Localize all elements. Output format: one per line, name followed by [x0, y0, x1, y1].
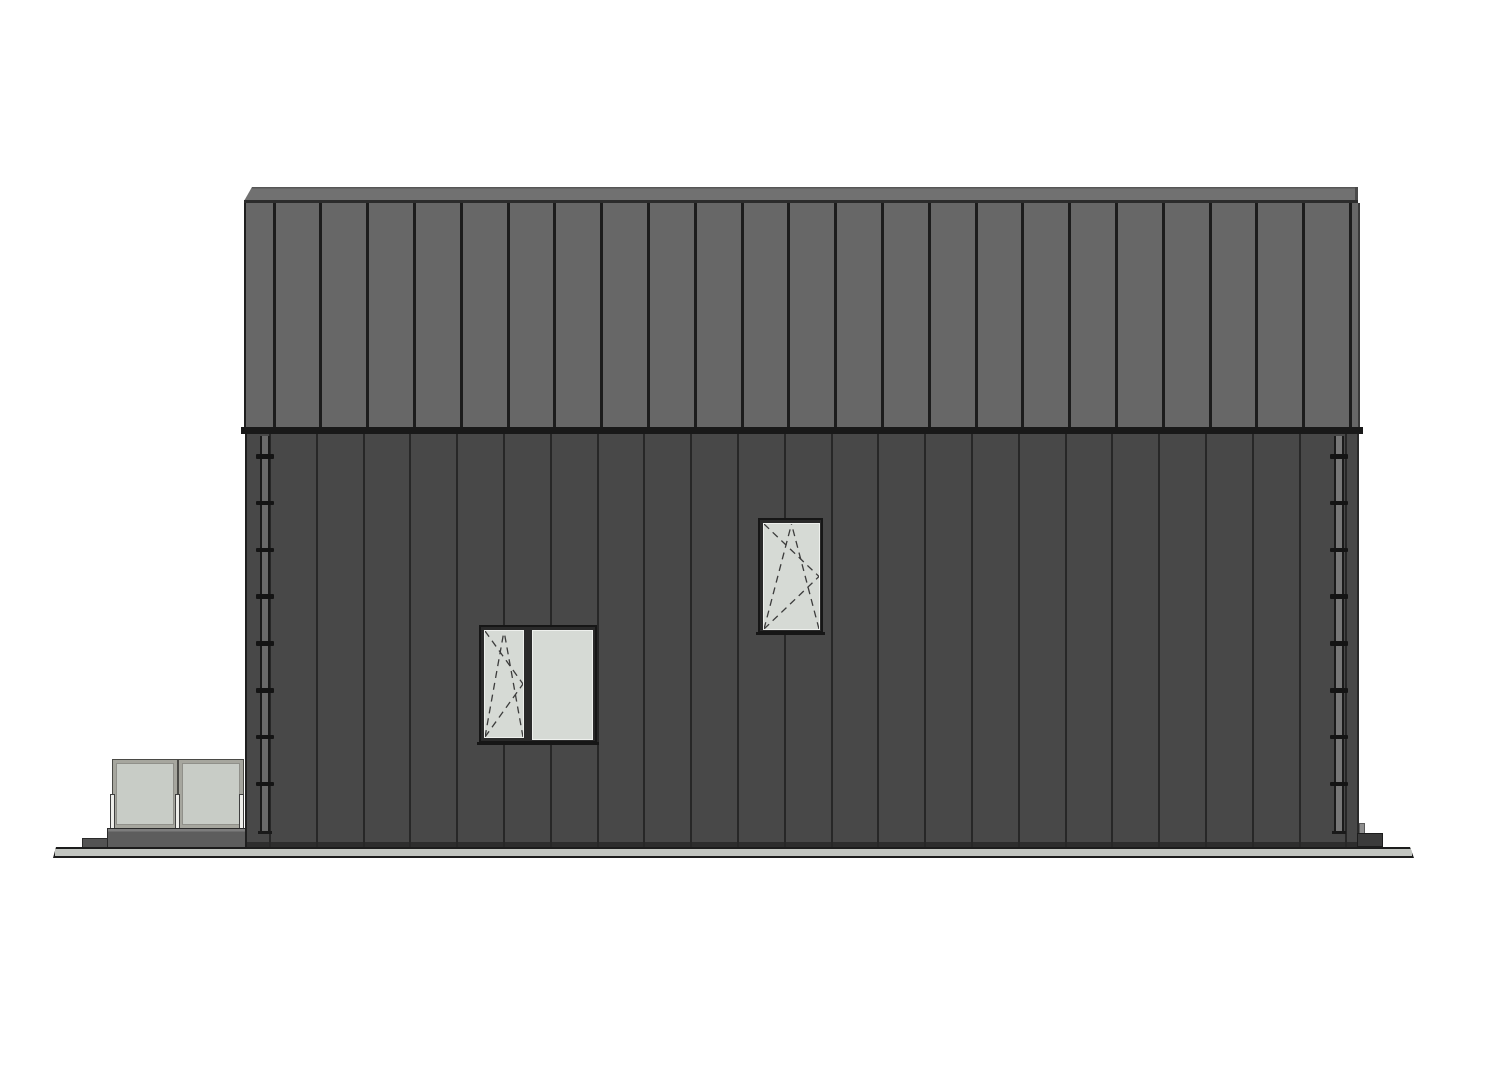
roof-seam-line: [834, 203, 837, 427]
roof-seam-line: [1162, 203, 1165, 427]
wall-board-line: [831, 434, 833, 848]
downspout-pipe: [1334, 436, 1344, 831]
downspout-right: [1330, 436, 1348, 834]
downspout-bracket: [1330, 641, 1348, 646]
roof-seam-line: [460, 203, 463, 427]
roof-seam-line: [1115, 203, 1118, 427]
railing-glass: [116, 763, 174, 825]
roof-seam-line: [647, 203, 650, 427]
wall-board-line: [924, 434, 926, 848]
downspout-bracket: [1330, 735, 1348, 740]
window-pane-fixed: [532, 630, 593, 740]
downspout-bracket: [256, 594, 274, 599]
roof-seam-line: [1209, 203, 1212, 427]
downspout-bracket: [256, 454, 274, 459]
railing-post: [239, 794, 244, 829]
downspout-bracket: [1330, 688, 1348, 693]
roof-seam-line: [1302, 203, 1305, 427]
wall-cladding: [245, 434, 1359, 848]
roof-seam-line: [881, 203, 884, 427]
roof-seam-line: [319, 203, 322, 427]
wall-board-line: [1018, 434, 1020, 848]
roof-seam-line: [507, 203, 510, 427]
wall-board-line: [643, 434, 645, 848]
wall-board-line: [784, 434, 786, 848]
wall-board-line: [1299, 434, 1301, 848]
railing-post: [175, 794, 180, 829]
opening-symbol: [485, 631, 523, 737]
double-casement-window: [479, 625, 597, 743]
roof-seam-line: [600, 203, 603, 427]
roof-seam-line: [787, 203, 790, 427]
downspout-bracket: [256, 641, 274, 646]
downspout-left: [256, 436, 274, 834]
downspout-bracket: [256, 782, 274, 787]
wall-board-line: [877, 434, 879, 848]
downspout-bracket: [1330, 501, 1348, 506]
wall-board-line: [316, 434, 318, 848]
roof-seam-line: [694, 203, 697, 427]
railing-post: [110, 794, 115, 829]
wall-board-line: [456, 434, 458, 848]
downspout-bracket: [256, 688, 274, 693]
downspout-shoe: [1332, 831, 1346, 835]
tilt-turn-window: [758, 518, 823, 633]
window-sill: [477, 742, 599, 745]
terrace-plinth: [107, 828, 248, 848]
wall-board-line: [409, 434, 411, 848]
roof-seam-line: [1068, 203, 1071, 427]
opening-symbol: [764, 524, 819, 629]
elevation-drawing: [0, 0, 1510, 1080]
roof-seam-line: [366, 203, 369, 427]
wall-board-line: [1111, 434, 1113, 848]
roof-seam-line: [1021, 203, 1024, 427]
wall-board-line: [363, 434, 365, 848]
foundation-block: [1357, 833, 1383, 847]
downspout-bracket: [1330, 782, 1348, 787]
ground-line: [53, 847, 1414, 858]
roof-cladding: [244, 203, 1360, 427]
eave-trim: [241, 427, 1363, 434]
downspout-bracket: [256, 501, 274, 506]
roof-seam-line: [1349, 203, 1352, 427]
window-sill: [756, 632, 825, 635]
downspout-bracket: [1330, 454, 1348, 459]
downspout-pipe: [260, 436, 270, 831]
wall-board-line: [971, 434, 973, 848]
roof-seam-line: [741, 203, 744, 427]
roof-seam-line: [413, 203, 416, 427]
window-sash-openable: [484, 630, 524, 738]
downspout-bracket: [256, 548, 274, 553]
roof-seam-line: [273, 203, 276, 427]
downspout-shoe: [258, 831, 272, 835]
roof-seam-line: [975, 203, 978, 427]
railing-glass: [182, 763, 240, 825]
terrace-step: [82, 838, 109, 848]
roof-seam-line: [1255, 203, 1258, 427]
railing-glass-panel-2: [179, 760, 243, 828]
ground-line-fill: [55, 849, 1412, 856]
wall-board-line: [1252, 434, 1254, 848]
downspout-bracket: [1330, 594, 1348, 599]
downspout-bracket: [1330, 548, 1348, 553]
window-sash-openable: [763, 523, 820, 630]
railing-glass-panel-1: [113, 760, 177, 828]
wall-board-line: [737, 434, 739, 848]
roof-fascia: [244, 187, 1358, 201]
roof-seam-line: [553, 203, 556, 427]
wall-board-line: [1065, 434, 1067, 848]
roof-seam-line: [928, 203, 931, 427]
wall-board-line: [690, 434, 692, 848]
wall-board-line: [1158, 434, 1160, 848]
wall-board-line: [1205, 434, 1207, 848]
roof-fascia-edge: [1355, 187, 1358, 201]
downspout-bracket: [256, 735, 274, 740]
